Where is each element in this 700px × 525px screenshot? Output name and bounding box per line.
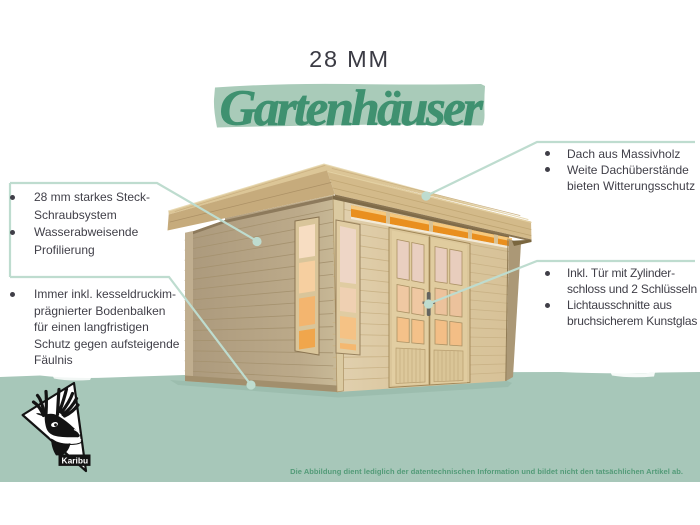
svg-text:Karibu: Karibu (62, 455, 89, 465)
